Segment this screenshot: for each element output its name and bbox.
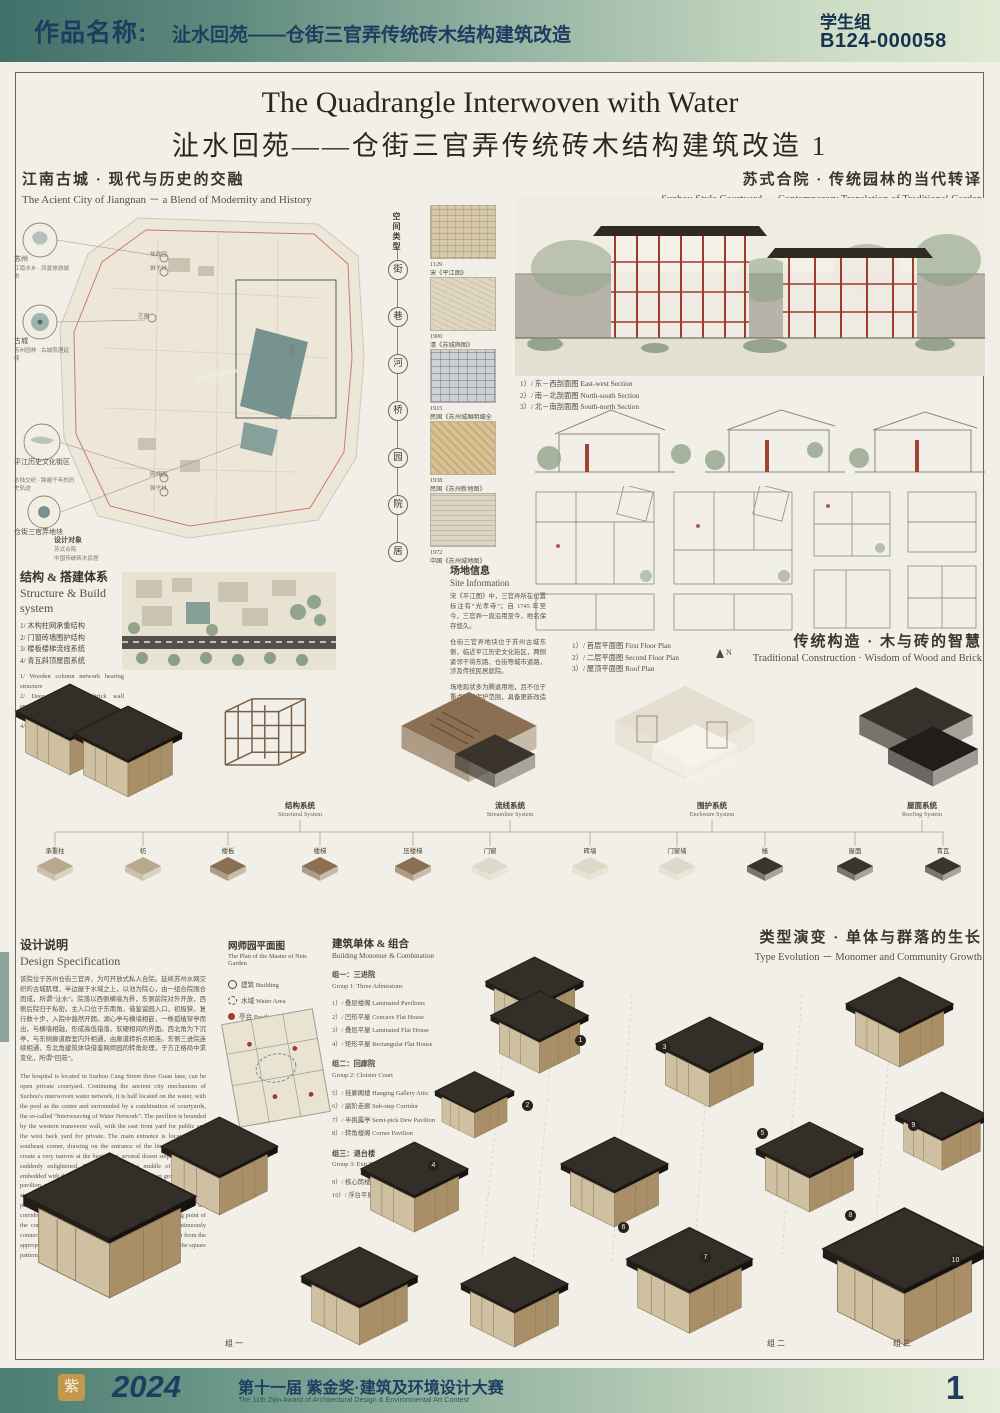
map-thumb-1129: 1129 宋《平江图》 [430, 205, 496, 278]
component-chip-figure [657, 855, 697, 883]
zijin-seal-logo: 紫 [58, 1374, 85, 1401]
badge-6: 6 [618, 1222, 629, 1233]
badge-4: 4 [428, 1160, 439, 1171]
component-fang: 枋 [111, 846, 175, 888]
map-thumb-1900: 1900 清《苏城舆图》 [430, 277, 496, 350]
timeline-item-river: 河 [388, 354, 408, 374]
structure-item-zh-1: 1/ 木构柱网承重结构 [20, 621, 124, 633]
footer-year: 2024 [112, 1369, 181, 1405]
intro-left-zh: 江南古城 · 现代与历史的交融 [22, 168, 312, 189]
map-thumb-1938: 1938 民国《苏州新地图》 [430, 421, 496, 494]
map-node-suzhou: 苏州 [14, 255, 28, 264]
poster: 作品名称: 沚水回苑——仓街三官弄传统砖木结构建筑改造 学生组 B124-000… [0, 0, 1000, 1413]
component-door-window: 门窗 [458, 846, 522, 888]
timeline-title: 空间类型 [391, 212, 402, 252]
map-thumb-1900-image [430, 277, 496, 331]
system-label-enclosure: 围护系统 Enclosure System [657, 800, 767, 818]
map-node-pingjiang: 平江历史文化街区 [14, 458, 78, 467]
footer-page-number: 1 [930, 1369, 980, 1407]
traditional-zh: 传统构造 · 木与砖的智慧 [600, 630, 982, 651]
footer-contest-title-en: The 11th Zijin Award of Architectural De… [238, 1395, 469, 1404]
component-green-tile: 青瓦 [911, 846, 975, 888]
component-chip-figure [393, 855, 433, 883]
map-thumb-1938-image [430, 421, 496, 475]
system-label-structural: 结构系统 Structural System [245, 800, 355, 818]
section-label-1: 1）/ 东－西剖面图 East-west Section [520, 378, 639, 390]
system-label-streamline: 流线系统 Streamline System [455, 800, 565, 818]
component-chip-figure [123, 855, 163, 883]
component-door-window-wall: 门窗墙 [645, 846, 709, 888]
map-garden-shizilin-2: 狮子林 [150, 486, 167, 494]
map-node-pingjiang-note: 水陆交织 · 跨越千年的历史轨迹 [14, 478, 76, 493]
site-info-title-zh: 场地信息 [450, 562, 546, 577]
map-garden-shizilin: 狮子林 [150, 266, 167, 274]
poster-title-zh: 沚水回苑——仓街三官弄传统砖木结构建筑改造 1 [0, 124, 1000, 163]
system-streamline-en: Streamline System [455, 811, 565, 818]
city-map-figure [18, 208, 376, 560]
group-caption-2: 组二 [742, 1338, 812, 1349]
nets-garden-title-zh: 网师园平面图 [228, 938, 324, 952]
site-plan-figure [122, 572, 336, 670]
map-thumb-1972: 1972 中国《苏州城地图》 [430, 493, 496, 566]
community-axons-figure [12, 955, 984, 1355]
component-bearing-column: 承重柱 [23, 846, 87, 888]
badge-7: 7 [700, 1252, 711, 1263]
timeline-item-lane: 巷 [388, 307, 408, 327]
system-label-roofing: 屋面系统 Roofing System [867, 800, 977, 818]
badge-1: 1 [575, 1035, 586, 1046]
competition-footer-bar: 紫 2024 第十一届 紫金奖·建筑及环境设计大赛 The 11th Zijin… [0, 1368, 1000, 1413]
component-rafter: 椽 [733, 846, 797, 888]
component-chip-figure [570, 855, 610, 883]
space-type-timeline: 空间类型 街 巷 河 桥 园 院 居 [384, 212, 412, 568]
system-streamline-zh: 流线系统 [455, 800, 565, 811]
floor-plans-figure [528, 486, 984, 636]
sections-row-figure [515, 400, 985, 482]
axon-structure-figure [198, 664, 338, 804]
competition-header-bar: 作品名称: 沚水回苑——仓街三官弄传统砖木结构建筑改造 学生组 B124-000… [0, 0, 1000, 62]
entry-code: B124-000058 [820, 30, 947, 53]
system-roofing-en: Roofing System [867, 811, 977, 818]
component-chip-figure [923, 855, 963, 883]
component-chip-figure [208, 855, 248, 883]
map-garden-wangshi: 网师园 [150, 472, 167, 480]
component-stair: 楼梯 [288, 846, 352, 888]
traditional-en: Traditional Construction · Wisdom of Woo… [600, 653, 982, 664]
axon-roofing-figure [845, 672, 990, 797]
component-chip-figure [745, 855, 785, 883]
type-evolution-zh: 类型演变 · 单体与群落的生长 [600, 926, 982, 947]
monomer-title-zh: 建筑单体 & 组合 [332, 936, 482, 951]
structure-item-zh-3: 3/ 楼板楼梯流线系统 [20, 644, 124, 656]
badge-3: 3 [659, 1042, 670, 1053]
work-name-label: 作品名称: [34, 13, 147, 49]
map-node-gucheng-note: 苏州园林 · 古城肌理延续 [14, 348, 72, 363]
component-roof-surface: 屋面 [823, 846, 887, 888]
timeline-item-street: 街 [388, 260, 408, 280]
badge-5: 5 [757, 1128, 768, 1139]
intro-left-en: The Acient City of Jiangnan － a Blend of… [22, 191, 312, 207]
structure-title-zh: 结构 & 搭建体系 [20, 568, 124, 585]
left-edge-tab [0, 952, 9, 1042]
component-chip-figure [835, 855, 875, 883]
system-roofing-zh: 屋面系统 [867, 800, 977, 811]
map-thumb-1938-year: 1938 [430, 477, 442, 484]
map-target-line3: 中国传统砖木民居 [54, 556, 99, 564]
poster-title-en: The Quadrangle Interwoven with Water [0, 86, 1000, 120]
system-structural-en: Structural System [245, 811, 355, 818]
map-thumb-1900-caption: 清《苏城舆图》 [430, 342, 473, 349]
structure-title-en: Structure & Build system [20, 586, 124, 616]
timeline-item-court: 院 [388, 495, 408, 515]
component-floor-slab: 楼板 [196, 846, 260, 888]
intro-right-zh: 苏式合院 · 传统园林的当代转译 [520, 168, 982, 189]
map-thumb-1972-image [430, 493, 496, 547]
map-thumb-1900-year: 1900 [430, 333, 442, 340]
map-street-label: 仓街 [286, 344, 294, 355]
map-target-title: 设计对象 [54, 536, 82, 545]
timeline-item-dwelling: 居 [388, 542, 408, 562]
map-thumb-1915: 1915 民国《苏州城厢明细全图》 [430, 349, 496, 431]
timeline-item-garden: 园 [388, 448, 408, 468]
map-thumb-1972-year: 1972 [430, 549, 442, 556]
map-node-gucheng: 古城 [14, 337, 28, 346]
work-title: 沚水回苑——仓街三官弄传统砖木结构建筑改造 [172, 20, 571, 47]
courtyard-perspective-figure [515, 198, 985, 376]
structure-item-zh-2: 2/ 门窗砖墙围护结构 [20, 633, 124, 645]
map-target-line2: 苏式合院 [54, 547, 76, 555]
group-caption-3: 组三 [868, 1338, 938, 1349]
component-chip-figure [300, 855, 340, 883]
map-garden-yipu: 艺圃 [138, 314, 149, 322]
map-garden-zhuozheng: 拙政园 [150, 252, 167, 260]
group-caption-1: 组一 [200, 1338, 270, 1349]
system-structural-zh: 结构系统 [245, 800, 355, 811]
map-thumb-1129-caption: 宋《平江图》 [430, 270, 467, 277]
system-connector-lines [0, 820, 1000, 846]
component-hanging-stair: 压楼梯 [381, 846, 445, 888]
component-chip-figure [470, 855, 510, 883]
component-chip-figure [35, 855, 75, 883]
badge-8: 8 [845, 1210, 856, 1221]
design-spec-title-zh: 设计说明 [20, 936, 206, 953]
site-info-para-1: 宋《平江图》中，三官弄所在位置标注有“光孝寺”；自 1745 年至今，三官弄一直… [450, 592, 546, 632]
timeline-item-bridge: 桥 [388, 401, 408, 421]
traditional-construction-heading: 传统构造 · 木与砖的智慧 Traditional Construction ·… [600, 630, 982, 664]
map-thumb-1129-image [430, 205, 496, 259]
site-info-title-en: Site Information [450, 578, 546, 588]
map-node-suzhou-note: 江南水乡 · 风景旅游城市 [14, 266, 72, 281]
axon-streamline-figure [380, 668, 565, 803]
badge-9: 9 [908, 1120, 919, 1131]
map-thumb-1938-caption: 民国《苏州新地图》 [430, 486, 486, 493]
system-enclosure-en: Enclosure System [657, 811, 767, 818]
badge-2: 2 [522, 1100, 533, 1111]
axon-house-figure [12, 664, 192, 804]
axon-enclosure-figure [595, 664, 775, 804]
intro-left-heading: 江南古城 · 现代与历史的交融 The Acient City of Jiang… [22, 168, 312, 207]
badge-10: 10 [950, 1255, 961, 1266]
system-enclosure-zh: 围护系统 [657, 800, 767, 811]
map-thumb-1915-year: 1915 [430, 405, 442, 412]
map-thumb-1915-image [430, 349, 496, 403]
component-brick-wall: 砖墙 [558, 846, 622, 888]
map-thumb-1129-year: 1129 [430, 261, 442, 268]
